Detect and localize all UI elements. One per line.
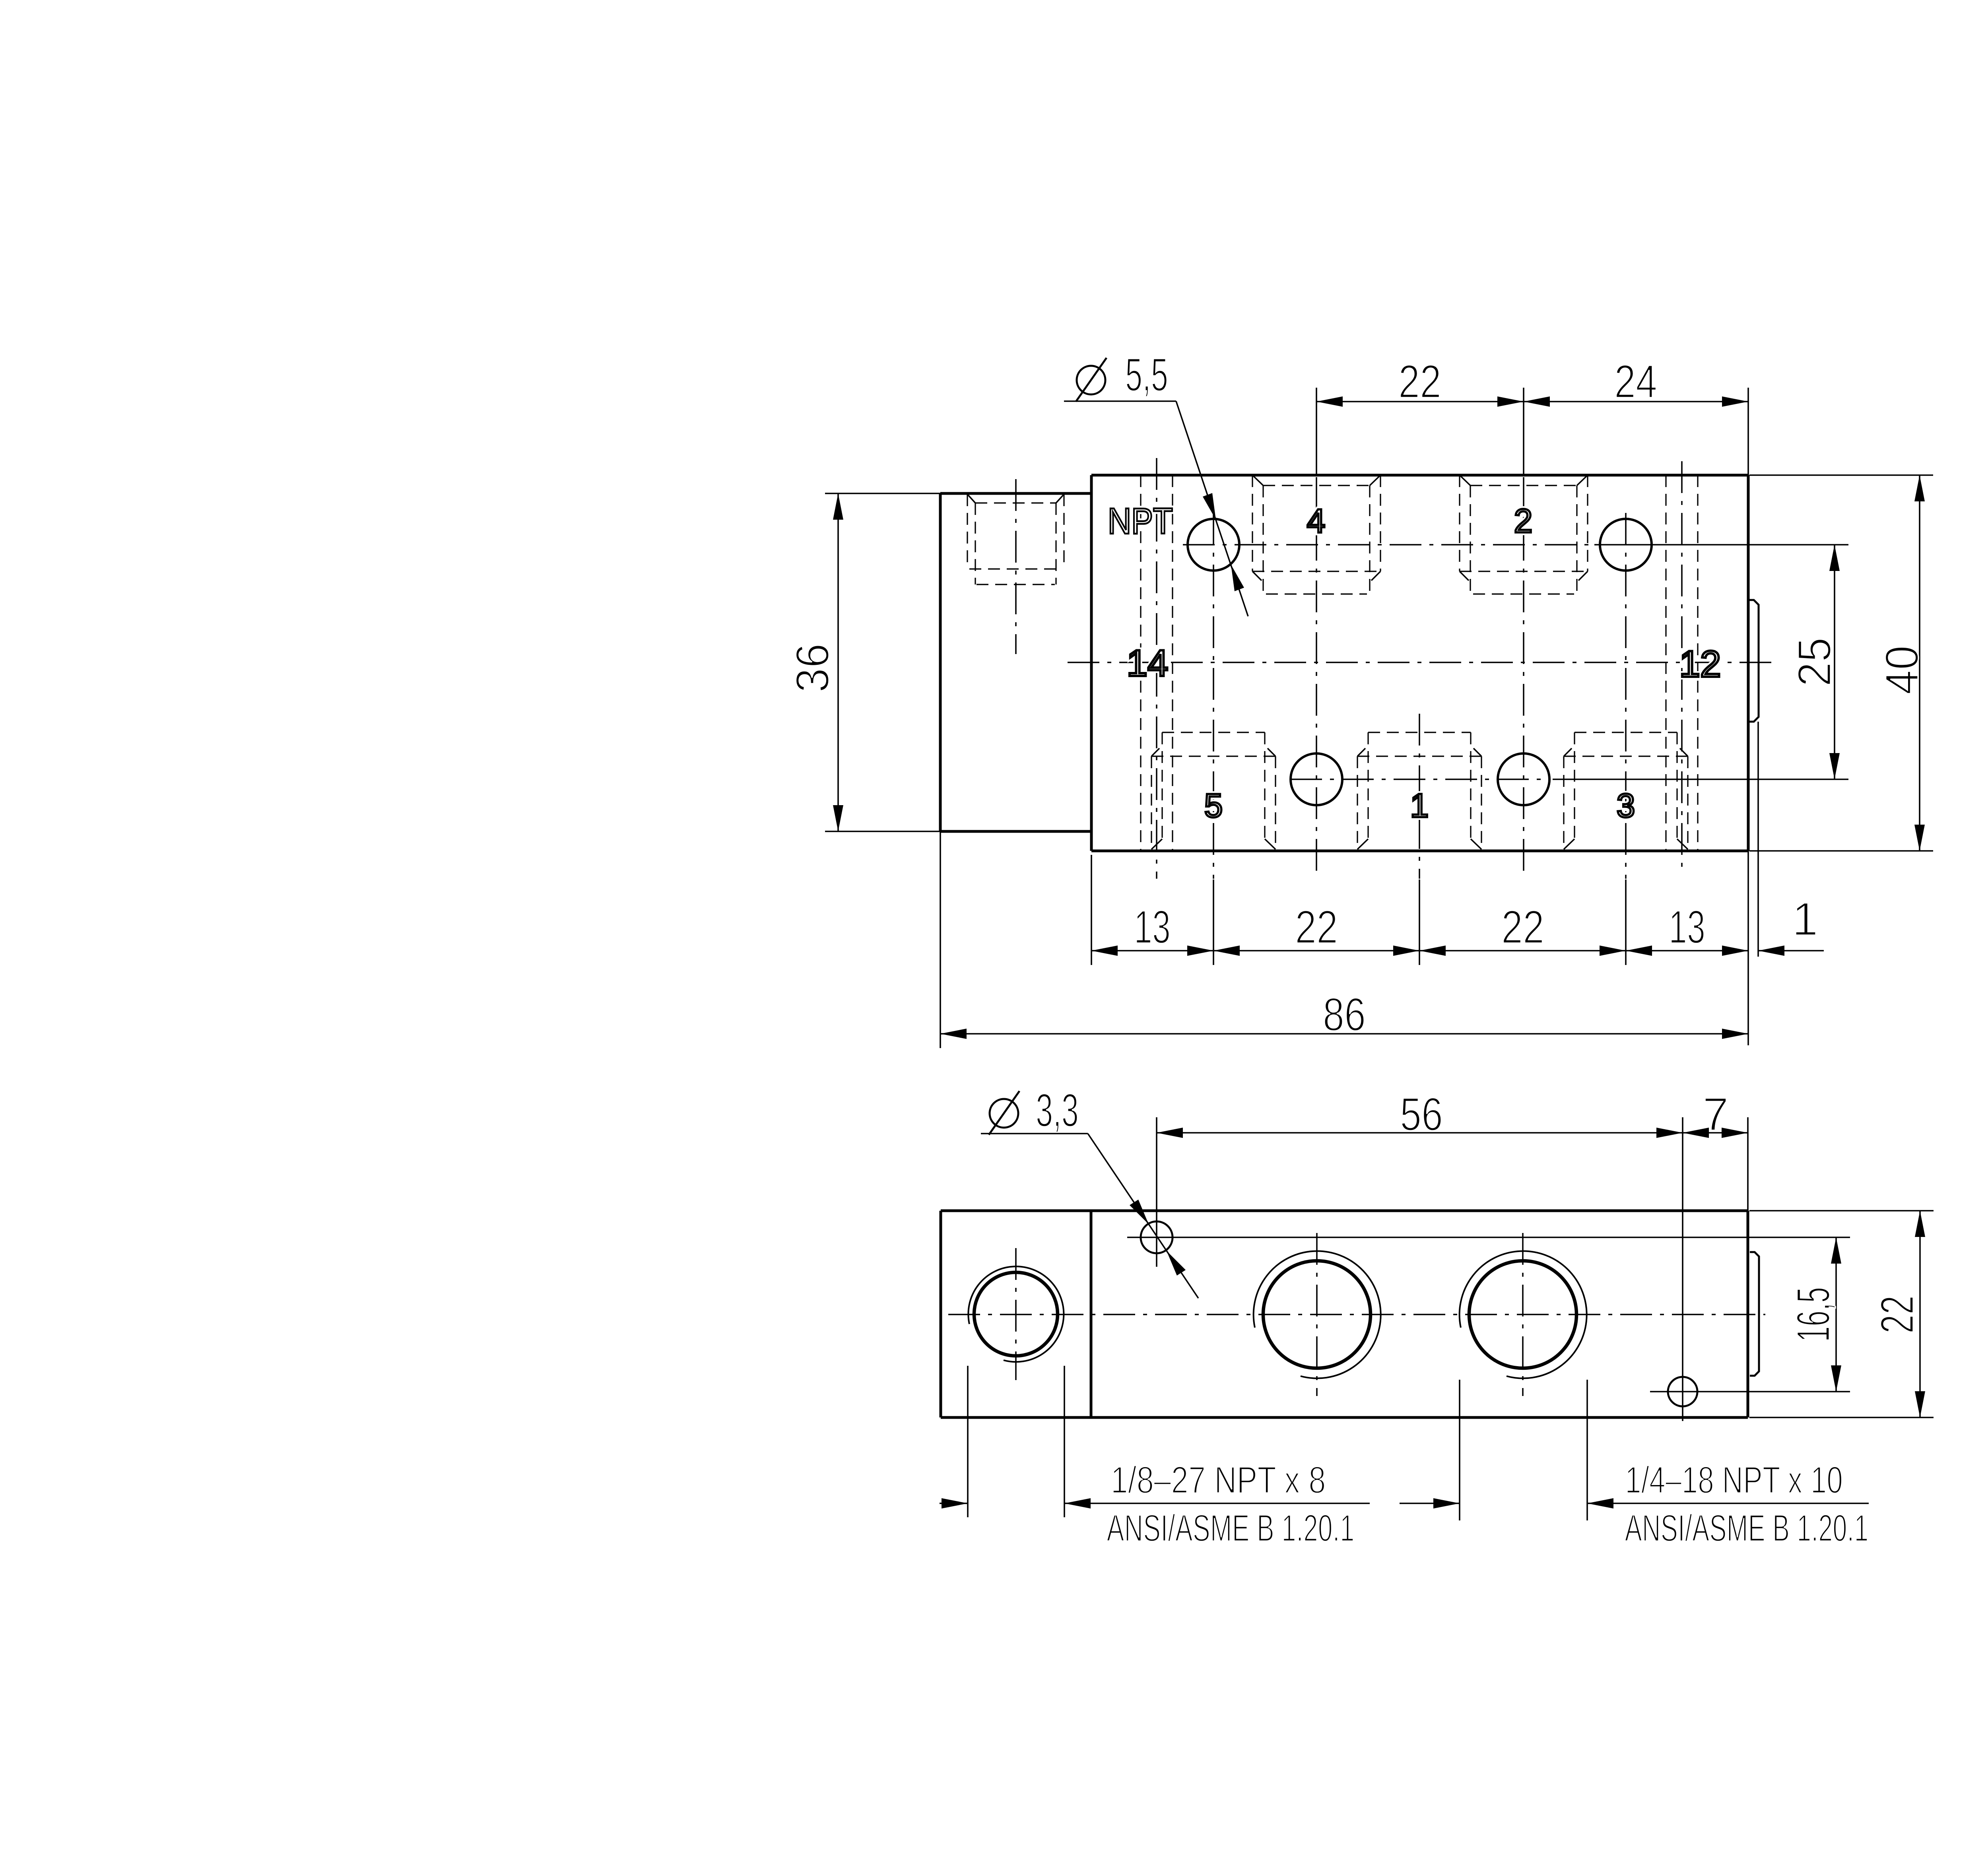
svg-text:5,5: 5,5 xyxy=(1125,349,1168,401)
svg-text:ANSI/ASME B 1.20.1: ANSI/ASME B 1.20.1 xyxy=(1107,1507,1355,1549)
svg-text:4: 4 xyxy=(1307,502,1326,540)
svg-text:22: 22 xyxy=(1871,1295,1924,1334)
svg-text:14: 14 xyxy=(1127,642,1169,684)
svg-text:2: 2 xyxy=(1514,502,1533,540)
svg-text:3,3: 3,3 xyxy=(1036,1084,1079,1137)
svg-text:1/8–27 NPT x 8: 1/8–27 NPT x 8 xyxy=(1111,1459,1326,1501)
svg-text:3: 3 xyxy=(1617,787,1635,824)
svg-text:56: 56 xyxy=(1400,1088,1443,1141)
svg-text:16,5: 16,5 xyxy=(1787,1287,1840,1342)
svg-text:1: 1 xyxy=(1410,787,1429,824)
svg-text:25: 25 xyxy=(1788,637,1841,687)
svg-text:22: 22 xyxy=(1501,901,1544,953)
svg-text:36: 36 xyxy=(786,643,839,693)
svg-text:12: 12 xyxy=(1679,643,1721,685)
svg-text:22: 22 xyxy=(1295,901,1338,953)
svg-text:1: 1 xyxy=(1792,893,1818,946)
svg-text:13: 13 xyxy=(1669,901,1705,953)
svg-text:7: 7 xyxy=(1703,1088,1729,1141)
svg-text:5: 5 xyxy=(1204,787,1223,824)
svg-text:1/4–18 NPT x 10: 1/4–18 NPT x 10 xyxy=(1625,1459,1843,1501)
svg-text:24: 24 xyxy=(1614,355,1657,408)
svg-text:ANSI/ASME B 1.20.1: ANSI/ASME B 1.20.1 xyxy=(1625,1507,1869,1549)
svg-text:NPT: NPT xyxy=(1108,501,1173,542)
svg-text:22: 22 xyxy=(1398,355,1441,408)
svg-text:13: 13 xyxy=(1134,901,1171,953)
svg-text:86: 86 xyxy=(1323,988,1366,1041)
svg-text:40: 40 xyxy=(1876,645,1928,695)
